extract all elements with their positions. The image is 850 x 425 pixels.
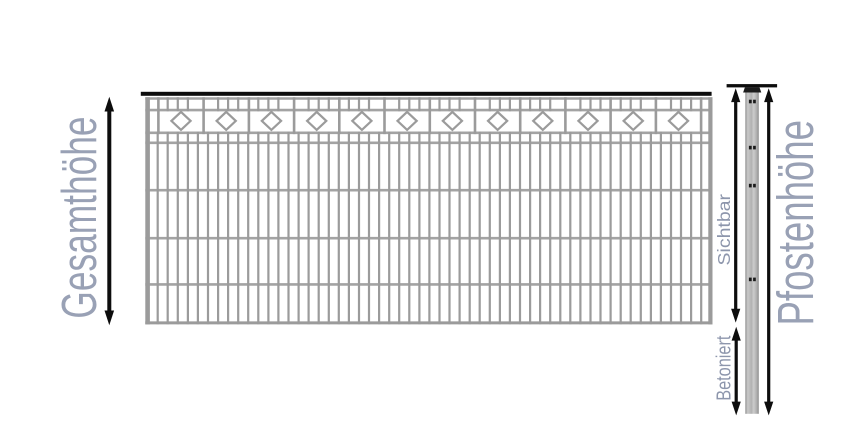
- svg-text:Pfostenhöhe: Pfostenhöhe: [768, 120, 824, 325]
- svg-text:Sichtbar: Sichtbar: [714, 194, 734, 266]
- svg-text:Betoniert: Betoniert: [712, 336, 735, 401]
- svg-text:Gesamthöhe: Gesamthöhe: [52, 117, 107, 319]
